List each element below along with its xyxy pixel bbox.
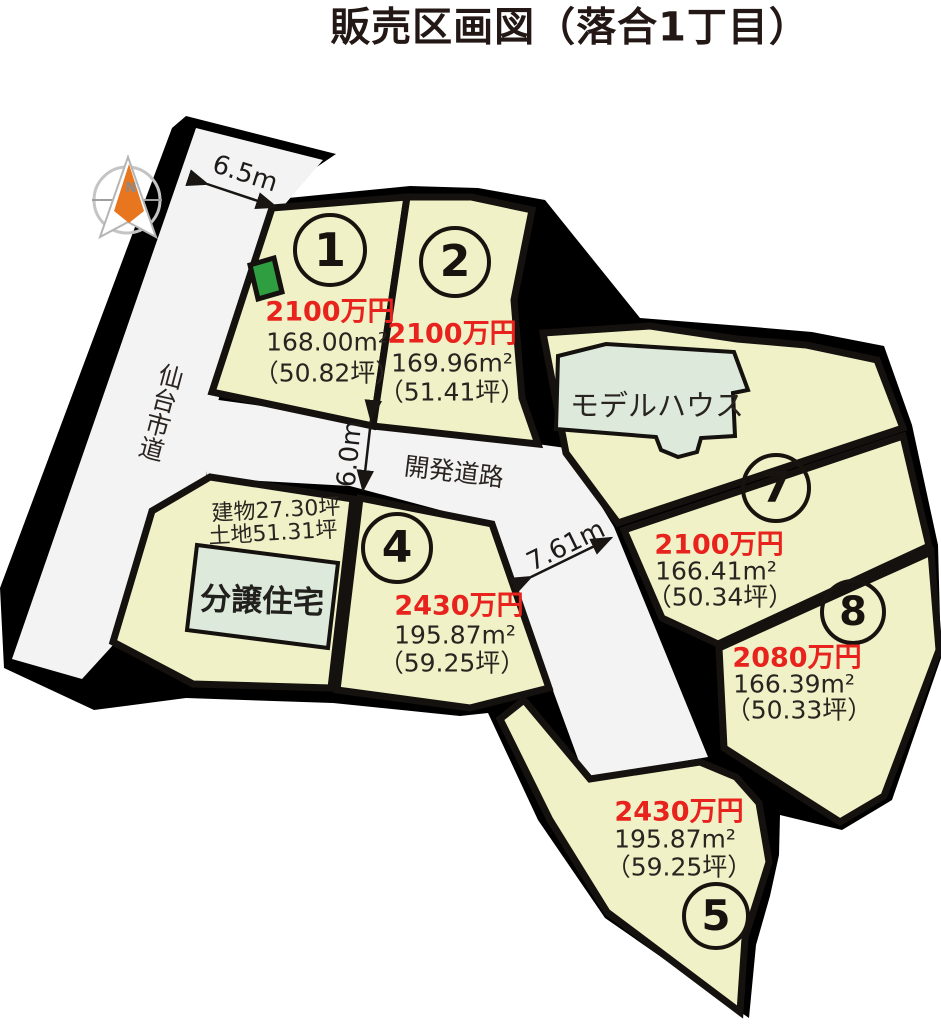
lot-5-area: 195.87m² [614,826,736,853]
lot-1-area: 168.00m² [266,329,388,356]
lot-5-number: 5 [682,882,750,950]
compass-north-label: N [126,182,137,196]
lot-2-tsubo: （51.41坪） [379,379,526,406]
lot-7-area: 166.41m² [655,558,777,585]
lot-2-area: 169.96m² [391,350,513,377]
lot-7-number: 7 [741,453,811,523]
model-house-label: モデルハウス [570,390,744,421]
plot-map-page: 販売区画図（落合1丁目） N 仙台市道 開発道路 6.5m 6.0m 7.61m… [0,0,941,1024]
lot-4-price: 2430万円 [394,591,523,620]
lot-1-number: 1 [293,213,367,287]
lot-8-tsubo: （50.33坪） [726,697,873,724]
measure-6-0m: 6.0m [333,419,368,488]
page-title: 販売区画図（落合1丁目） [330,6,810,49]
lot-8-number: 8 [820,579,886,645]
lot-2-price: 2100万円 [387,319,516,348]
lot-4-area: 195.87m² [394,622,516,649]
lot-2-number: 2 [419,226,491,298]
lot-7-tsubo: （50.34坪） [647,584,794,611]
lot-8-area: 166.39m² [733,671,855,698]
lot-7-price: 2100万円 [654,530,783,559]
lot-4-number: 4 [361,512,433,584]
lot-5-tsubo: （59.25坪） [606,854,753,881]
lot-4-tsubo: （59.25坪） [379,650,526,677]
green-marker [250,258,282,299]
lot-5-price: 2430万円 [614,797,743,826]
bunjo-label: 分譲住宅 [199,583,324,621]
lot-1-price: 2100万円 [265,297,394,326]
lot-8-price: 2080万円 [732,643,861,672]
